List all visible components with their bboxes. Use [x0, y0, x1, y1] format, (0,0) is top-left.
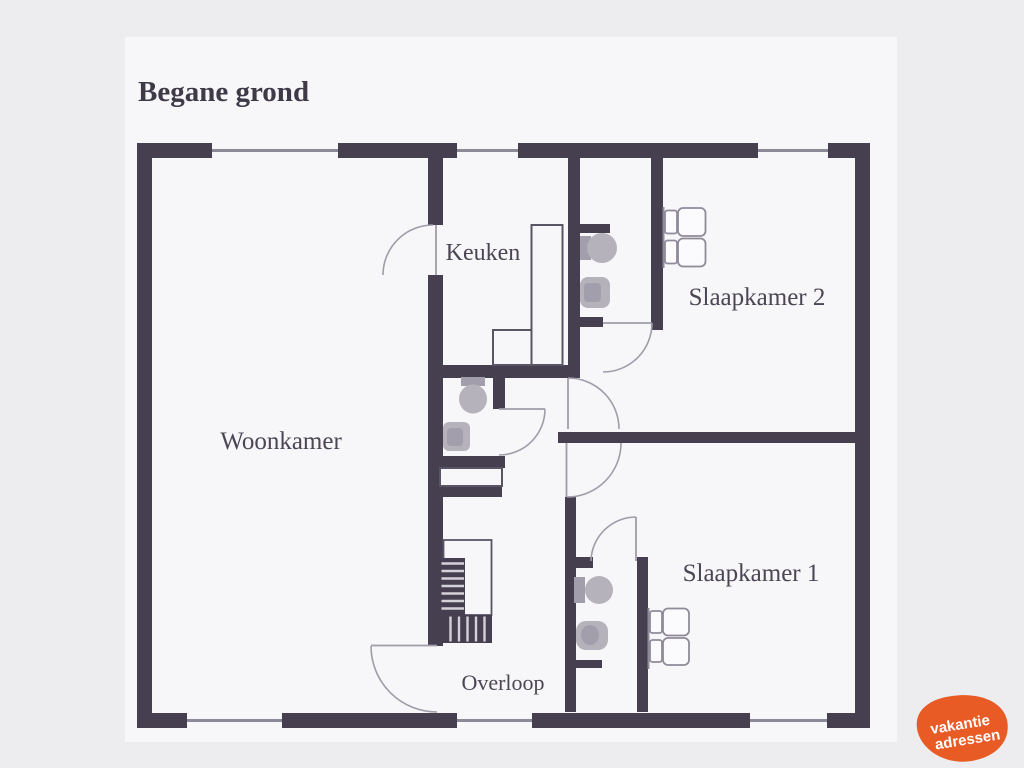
sink-icon: [576, 621, 608, 650]
toilet-icon: [574, 576, 613, 604]
label-overloop: Overloop: [461, 670, 544, 695]
label-woonkamer: Woonkamer: [220, 428, 342, 455]
plan-canvas: [125, 37, 897, 742]
page-title: Begane grond: [138, 76, 309, 108]
floor-plan-drawing: Begane grond: [0, 0, 1024, 768]
sink-icon: [580, 277, 610, 308]
label-keuken: Keuken: [446, 240, 521, 266]
floor-plan-page: Begane grond: [0, 0, 1024, 768]
label-slaapkamer2: Slaapkamer 2: [689, 284, 826, 311]
sink-icon: [443, 422, 470, 451]
label-slaapkamer1: Slaapkamer 1: [683, 560, 820, 587]
toilet-icon: [580, 233, 617, 263]
vakantieadressen-logo: vakantie adressen: [917, 695, 1008, 762]
hall-closet: [440, 468, 502, 486]
toilet-icon: [459, 377, 487, 414]
stair-treads-upper: [442, 564, 465, 609]
